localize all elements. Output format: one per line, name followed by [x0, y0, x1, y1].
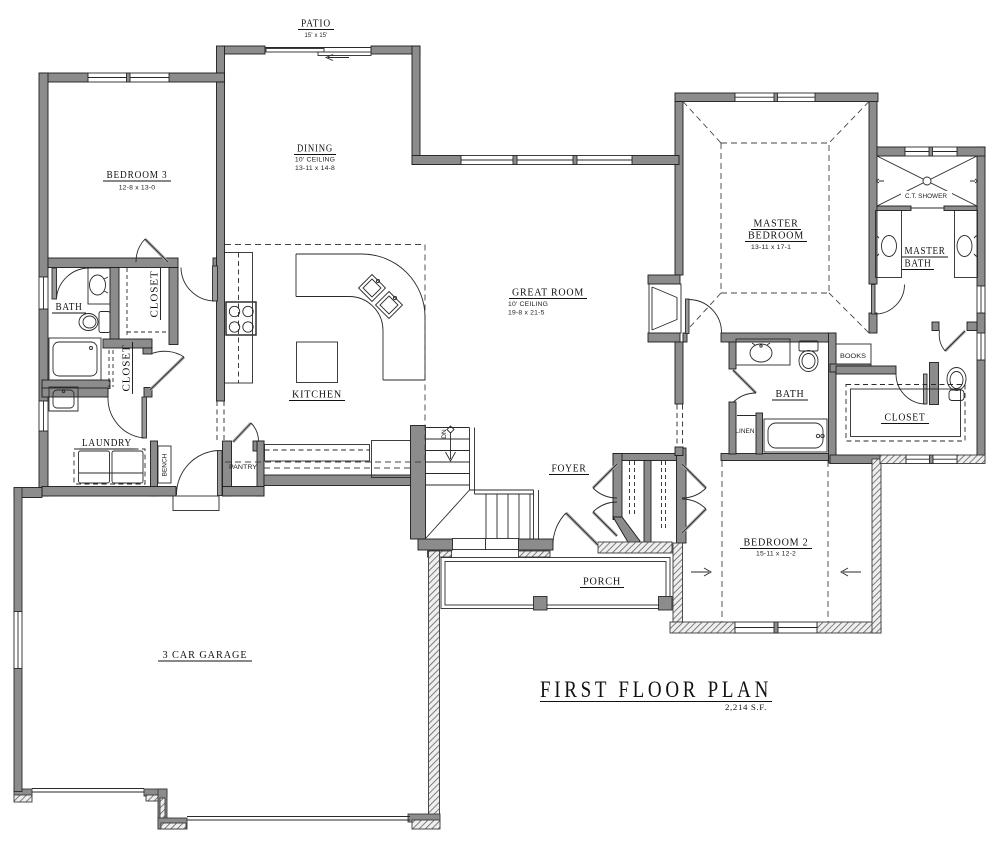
svg-text:FOYER: FOYER: [552, 464, 587, 475]
svg-text:LAUNDRY: LAUNDRY: [82, 438, 132, 449]
svg-text:CLOSET: CLOSET: [122, 345, 133, 392]
svg-text:DN: DN: [441, 429, 448, 439]
svg-text:15-11 x 12-2: 15-11 x 12-2: [756, 551, 796, 558]
svg-text:MASTER: MASTER: [905, 246, 946, 257]
svg-text:PORCH: PORCH: [583, 577, 621, 588]
svg-text:BEDROOM 3: BEDROOM 3: [107, 169, 168, 181]
svg-text:DINING: DINING: [297, 143, 333, 155]
svg-text:BATH: BATH: [56, 302, 83, 313]
svg-text:MASTER: MASTER: [754, 219, 799, 230]
svg-text:10' CEILING: 10' CEILING: [508, 301, 548, 308]
svg-text:GREAT ROOM: GREAT ROOM: [512, 288, 584, 299]
svg-text:BEDROOM: BEDROOM: [748, 231, 804, 242]
svg-text:BEDROOM 2: BEDROOM 2: [744, 538, 809, 549]
svg-text:19-8 x 21-5: 19-8 x 21-5: [508, 310, 545, 317]
svg-text:10' CEILING: 10' CEILING: [295, 157, 335, 164]
svg-text:BENCH: BENCH: [162, 453, 169, 476]
svg-text:FIRST FLOOR PLAN: FIRST FLOOR PLAN: [540, 677, 772, 702]
svg-text:15' x 15': 15' x 15': [305, 32, 328, 39]
svg-text:13-11 x 17-1: 13-11 x 17-1: [751, 244, 791, 251]
svg-text:PANTRY: PANTRY: [229, 464, 258, 471]
svg-text:C.T. SHOWER: C.T. SHOWER: [905, 193, 947, 200]
svg-text:LINEN: LINEN: [735, 428, 754, 435]
svg-text:BATH: BATH: [905, 259, 932, 270]
svg-text:PATIO: PATIO: [301, 18, 331, 30]
svg-text:BOOKS: BOOKS: [840, 353, 867, 360]
svg-text:2,214 S.F.: 2,214 S.F.: [725, 702, 767, 712]
svg-text:CLOSET: CLOSET: [150, 271, 161, 318]
svg-text:13-11 x 14-8: 13-11 x 14-8: [295, 165, 335, 172]
svg-text:CLOSET: CLOSET: [885, 413, 926, 424]
svg-text:3 CAR GARAGE: 3 CAR GARAGE: [163, 649, 248, 661]
svg-text:KITCHEN: KITCHEN: [292, 390, 342, 401]
svg-text:BATH: BATH: [776, 389, 805, 400]
svg-text:12-8 x 13-0: 12-8 x 13-0: [119, 185, 156, 192]
